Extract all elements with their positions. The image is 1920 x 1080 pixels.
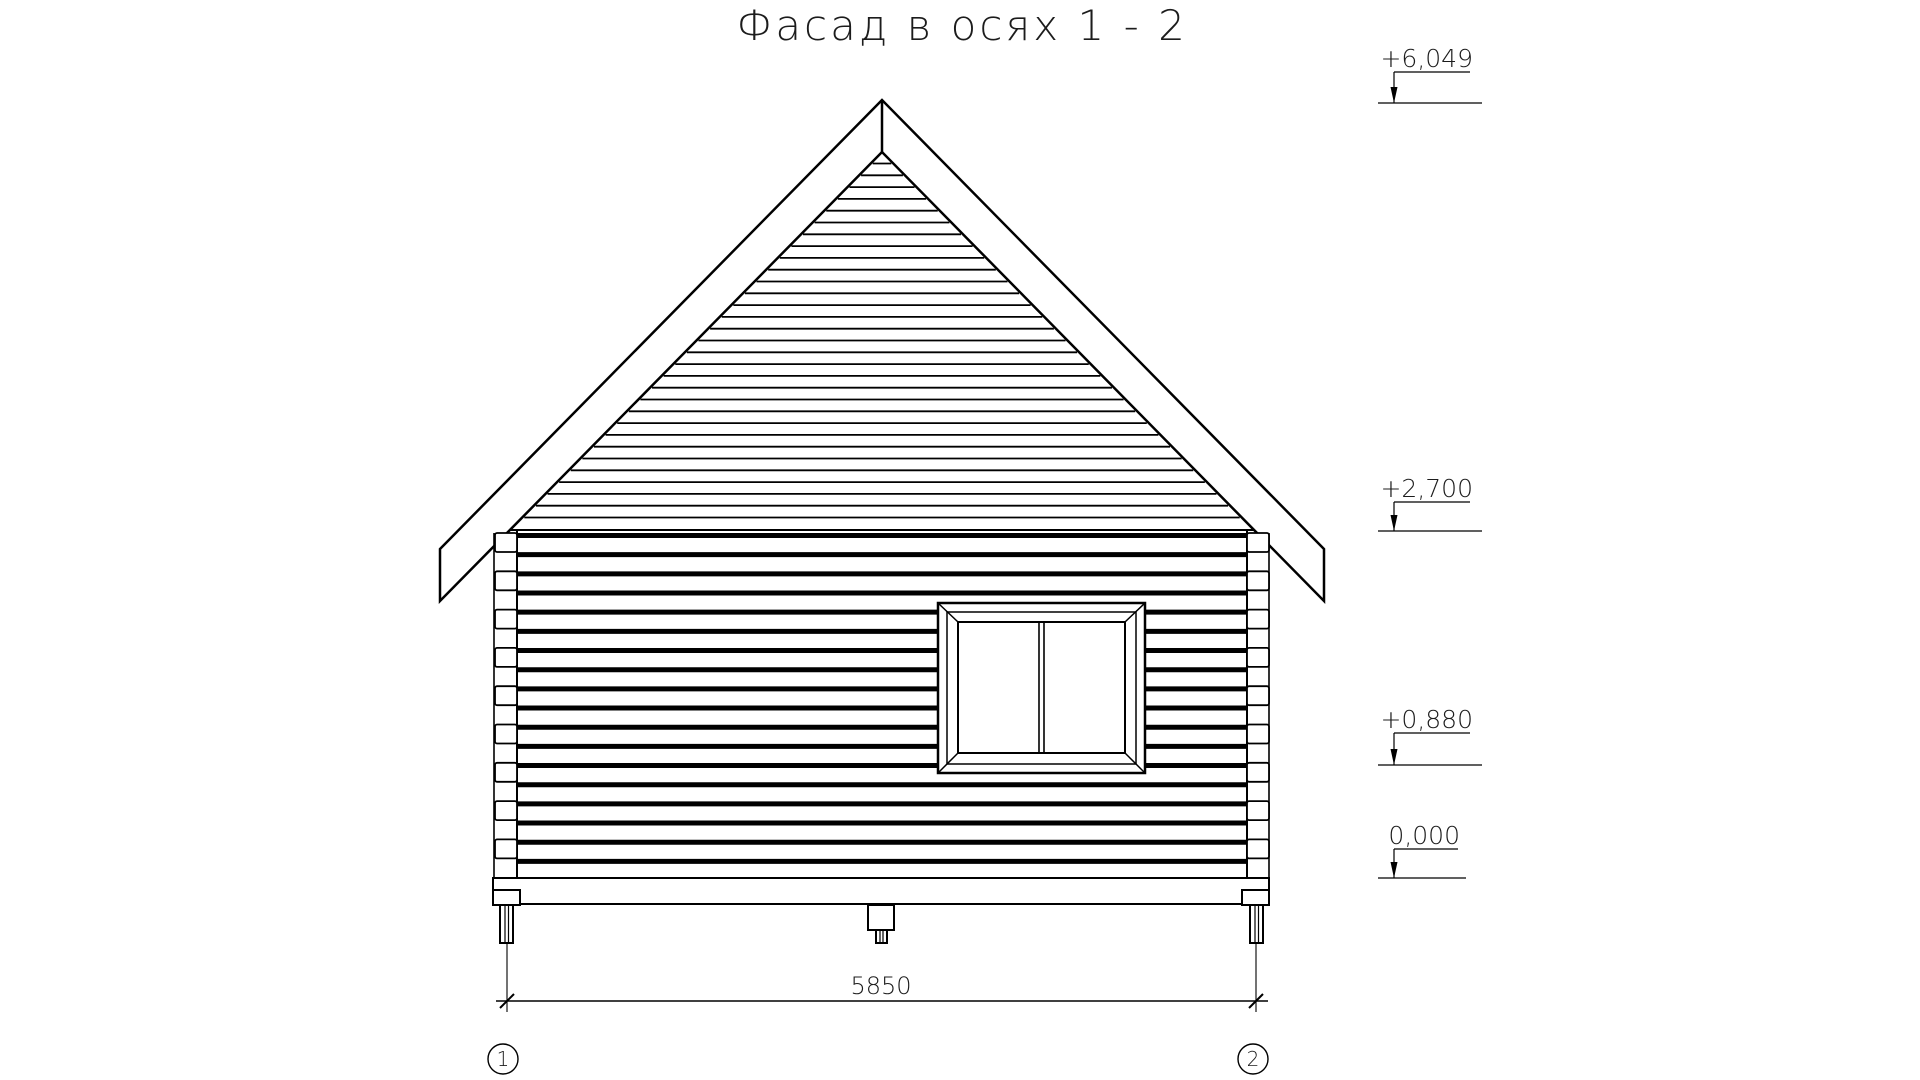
beam-end-block — [495, 533, 517, 552]
pier-center-cap — [868, 905, 894, 930]
beam-end-block — [1247, 533, 1269, 552]
beam-end-block — [495, 725, 517, 744]
pier-left-foot — [500, 905, 513, 943]
elevation-label: +2,700 — [1380, 474, 1473, 503]
elevation-label: +0,880 — [1380, 705, 1473, 734]
window — [938, 603, 1145, 773]
base-corner-block-right — [1242, 890, 1269, 905]
beam-end-block — [495, 686, 517, 705]
beam-end-block — [1247, 571, 1269, 590]
beam-end-block — [1247, 686, 1269, 705]
base-corner-block-left — [493, 890, 520, 905]
beam-end-block — [1247, 839, 1269, 858]
foundation-pier-left — [500, 905, 513, 943]
beam-end-block — [495, 648, 517, 667]
beam-end-block — [1247, 763, 1269, 782]
facade-drawing: Фасад в осях 1 - 2 — [0, 0, 1920, 1080]
window-frame — [958, 622, 1125, 753]
pier-center-foot — [876, 930, 887, 943]
beam-end-block — [495, 610, 517, 629]
beam-end-block — [1247, 725, 1269, 744]
beam-end-block — [1247, 801, 1269, 820]
foundation-pier-right — [1250, 905, 1263, 943]
pier-right-foot — [1250, 905, 1263, 943]
beam-end-block — [495, 839, 517, 858]
beam-end-block — [1247, 648, 1269, 667]
axis-label-1: 1 — [497, 1047, 510, 1071]
drawing-title: Фасад в осях 1 - 2 — [736, 1, 1188, 50]
axis-label-2: 2 — [1247, 1047, 1260, 1071]
drawing-sheet: Фасад в осях 1 - 2 — [0, 0, 1920, 1080]
dimension-label: 5850 — [850, 972, 911, 1000]
beam-end-block — [495, 763, 517, 782]
beam-end-block — [495, 801, 517, 820]
beam-end-block — [495, 571, 517, 590]
elevation-label: +6,049 — [1380, 44, 1473, 73]
beam-end-block — [1247, 610, 1269, 629]
foundation-beam — [493, 878, 1269, 904]
elevation-label: 0,000 — [1388, 821, 1460, 850]
